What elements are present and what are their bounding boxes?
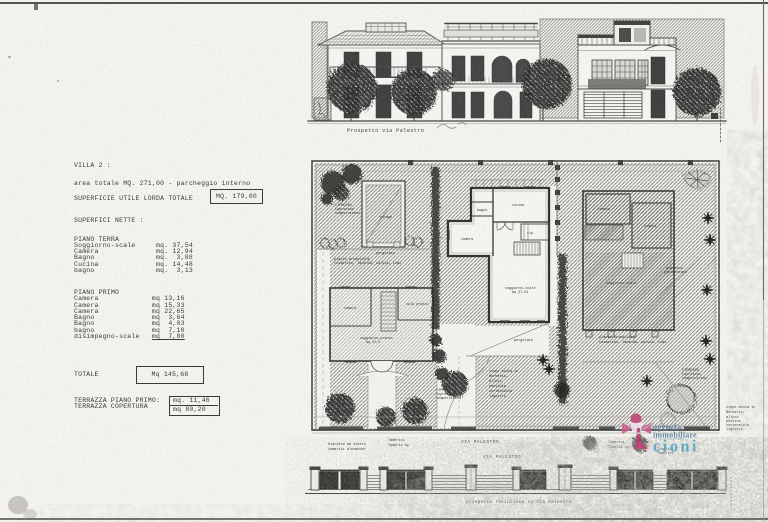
svg-text:cioni: cioni [653, 437, 699, 456]
